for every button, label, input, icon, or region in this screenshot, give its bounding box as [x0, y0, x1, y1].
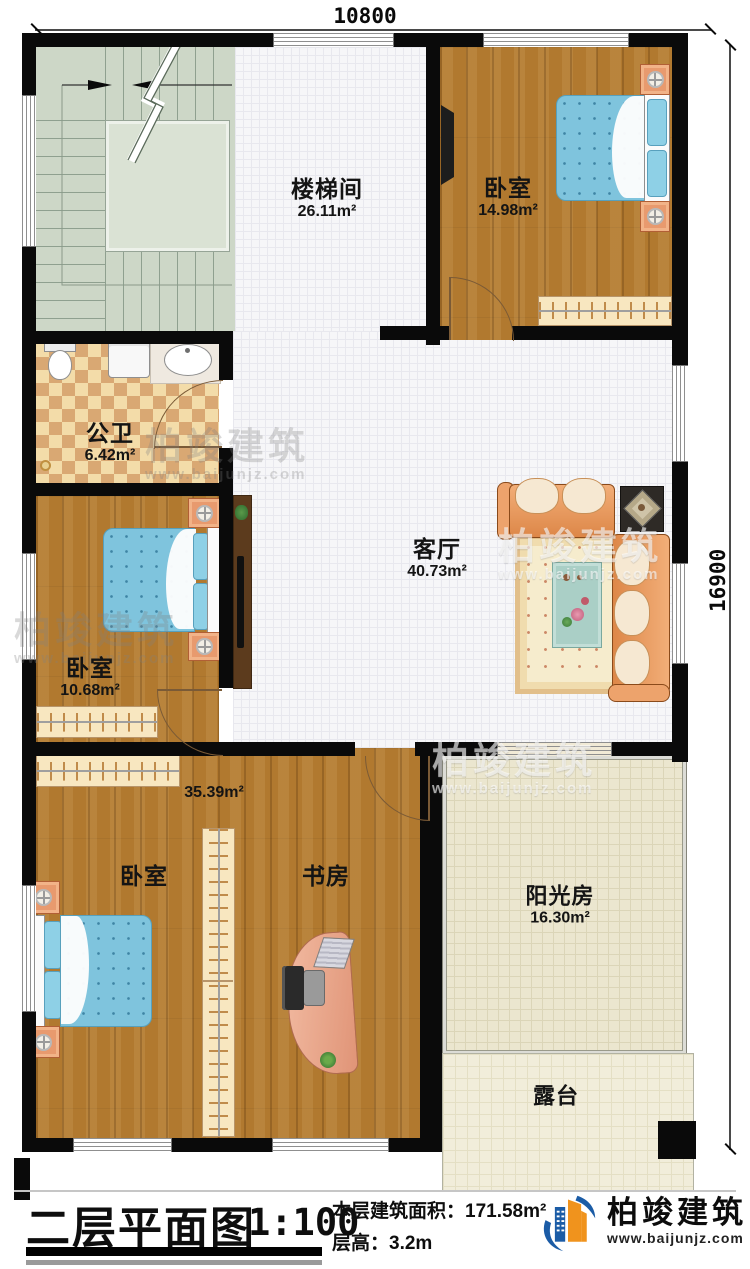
lamp-finial-icon: [638, 504, 645, 511]
floor-drain-icon: [40, 460, 51, 471]
brand-website: www.baijunjz.com: [607, 1230, 747, 1247]
terrace-column: [658, 1121, 696, 1159]
door-leaf: [428, 756, 430, 820]
room-label-living-room: 客厅 40.73m²: [407, 537, 467, 581]
nightstand: [640, 201, 670, 232]
room-label-bathroom: 公卫 6.42m²: [85, 421, 136, 465]
room-area: 14.98m²: [478, 202, 538, 220]
door-leaf: [154, 446, 222, 448]
window: [73, 1138, 172, 1152]
plant-icon: [235, 505, 248, 520]
plant-icon: [320, 1052, 336, 1068]
bud-icon: [581, 597, 589, 605]
washing-machine: [108, 338, 150, 378]
floor-plan: 柏竣建筑 www.baijunjz.com 柏竣建筑 www.baijunjz.…: [0, 0, 750, 1269]
dimension-top-value: 10800: [333, 4, 396, 28]
nightstand: [188, 632, 221, 661]
wardrobe-bedroom-mid: [36, 706, 158, 738]
window: [672, 563, 688, 664]
window: [672, 365, 688, 462]
closet-divider-split: [202, 980, 233, 982]
wall-stairs-bottom: [22, 331, 233, 344]
wardrobe-bedroom-bottom: [36, 755, 180, 787]
room-label-bedroom-bottom-area: 35.39m²: [184, 784, 244, 802]
wall-hall-bedroom: [426, 33, 440, 345]
room-label-study: 书房: [302, 864, 350, 890]
sofa-cushion: [562, 478, 606, 514]
bowl-icon: [577, 575, 582, 580]
wall-bedroom-top-bottom: [512, 326, 688, 340]
room-area: 35.39m²: [184, 784, 244, 802]
terrace-floor: [442, 1053, 694, 1192]
window: [272, 1138, 389, 1152]
lamp-icon: [196, 505, 213, 522]
brand-logo: 柏竣建筑 www.baijunjz.com: [538, 1190, 747, 1254]
tv-living: [237, 556, 244, 648]
room-name: 阳光房: [525, 885, 594, 910]
room-label-sunroom: 阳光房 16.30m²: [525, 885, 594, 928]
wall-bathroom-bottom: [22, 483, 233, 496]
toilet-bowl: [48, 350, 72, 380]
brand-logo-text: 柏竣建筑 www.baijunjz.com: [607, 1197, 747, 1246]
door-leaf: [449, 277, 451, 340]
sofa-cushion: [614, 590, 650, 636]
room-area: 40.73m²: [407, 563, 467, 581]
leaf-icon: [562, 617, 572, 627]
room-name: 露台: [533, 1085, 579, 1110]
nightstand: [188, 498, 221, 528]
window: [483, 33, 629, 47]
title-underline: [26, 1247, 322, 1256]
room-area: 10.68m²: [60, 682, 120, 700]
sofa-cushion: [614, 540, 650, 586]
brand-name: 柏竣建筑: [607, 1197, 747, 1230]
room-name: 客厅: [407, 537, 467, 563]
room-area: 6.42m²: [85, 447, 136, 465]
title-underline-shadow: [26, 1260, 322, 1265]
room-name: 书房: [302, 864, 350, 890]
window-sliding-door: [497, 742, 612, 756]
nightstand: [640, 64, 670, 95]
bowl-icon: [563, 574, 570, 581]
dimension-top: 10800: [0, 4, 730, 28]
computer-monitor: [282, 966, 304, 1010]
faucet-icon: [185, 348, 190, 353]
pillow: [647, 99, 667, 146]
window: [22, 553, 36, 660]
floor-height-line: 层高：3.2m: [332, 1228, 432, 1255]
room-label-bedroom-mid: 卧室 10.68m²: [60, 656, 120, 700]
drawing-title-text: 二层平面图: [26, 1204, 256, 1253]
room-label-bedroom-bottom: 卧室: [120, 864, 168, 890]
room-name: 公卫: [85, 421, 136, 447]
lamp-icon: [35, 889, 52, 906]
flower-icon: [571, 608, 584, 621]
dimension-line-top: [35, 29, 711, 31]
room-area: 16.30m²: [525, 909, 594, 927]
wall-bathroom-right: [219, 331, 233, 380]
door-leaf: [157, 689, 222, 691]
floor-area-line: 本层建筑面积：171.58m²: [332, 1196, 546, 1223]
lamp-icon: [196, 638, 213, 655]
room-name: 卧室: [478, 176, 538, 202]
sofa-cushion: [614, 640, 650, 686]
room-label-terrace: 露台: [533, 1085, 579, 1110]
floor-height-text: 层高：3.2m: [332, 1233, 432, 1254]
wall-living-bottom: [610, 742, 672, 756]
sofa-armrest: [608, 684, 670, 702]
dimension-right: 16900: [706, 552, 730, 612]
tv-bedroom-top: [441, 105, 454, 185]
room-area: 26.11m²: [291, 203, 363, 221]
window: [22, 885, 36, 1012]
lamp-icon: [647, 71, 664, 88]
room-label-stairwell: 楼梯间 26.11m²: [291, 177, 363, 221]
room-label-bedroom-top: 卧室 14.98m²: [478, 176, 538, 220]
sofa-cushion: [515, 478, 559, 514]
brand-logo-icon: [538, 1190, 598, 1254]
wall-bedroom-top-bottom: [380, 326, 450, 340]
floor-area-text: 本层建筑面积：171.58m²: [332, 1201, 546, 1222]
lamp-icon: [35, 1034, 52, 1051]
pillow: [647, 150, 667, 197]
dimension-right-value: 16900: [706, 549, 730, 612]
window: [22, 95, 36, 247]
room-name: 卧室: [120, 864, 168, 890]
room-name: 楼梯间: [291, 177, 363, 203]
room-name: 卧室: [60, 656, 120, 682]
stair-direction-icon: [36, 40, 236, 290]
lamp-icon: [647, 208, 664, 225]
closet-divider: [202, 828, 235, 1137]
office-chair: [303, 970, 325, 1006]
wardrobe-bedroom-top: [538, 296, 672, 326]
window: [273, 33, 394, 47]
